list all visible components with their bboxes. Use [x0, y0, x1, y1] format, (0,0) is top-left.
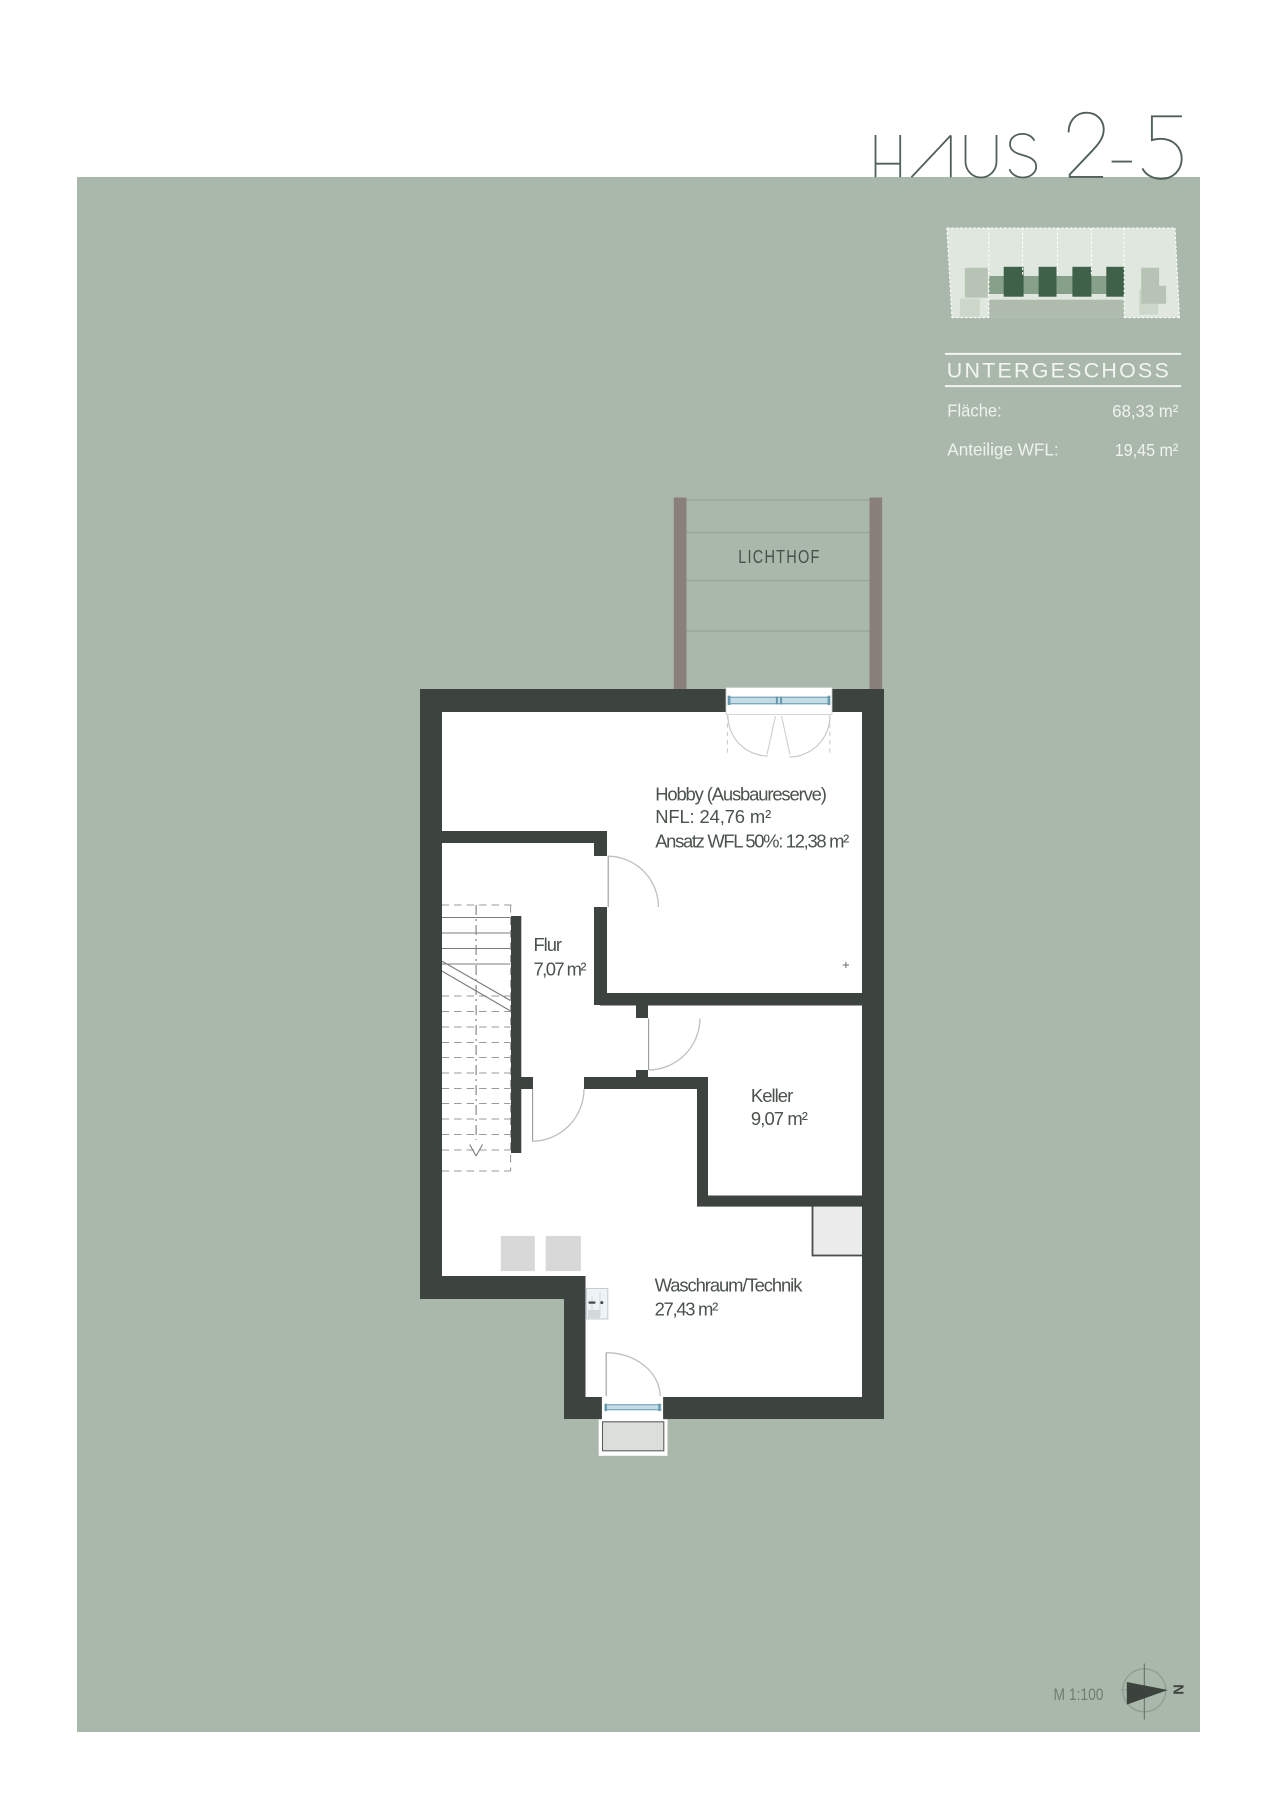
- svg-text:Waschraum/Technik: Waschraum/Technik: [655, 1275, 804, 1296]
- svg-text:UNTERGESCHOSS: UNTERGESCHOSS: [947, 358, 1174, 382]
- svg-text:Hobby (Ausbaureserve): Hobby (Ausbaureserve): [655, 784, 827, 805]
- svg-text:68,33 m²: 68,33 m²: [1112, 401, 1178, 421]
- svg-text:N: N: [1170, 1684, 1186, 1694]
- svg-text:Flur: Flur: [534, 934, 563, 955]
- svg-text:27,43 m²: 27,43 m²: [655, 1298, 719, 1319]
- svg-text:19,45 m²: 19,45 m²: [1115, 440, 1179, 460]
- svg-text:9,07 m²: 9,07 m²: [751, 1108, 808, 1129]
- svg-text:LICHTHOF: LICHTHOF: [738, 547, 820, 567]
- svg-text:7,07 m²: 7,07 m²: [534, 959, 587, 980]
- svg-text:Keller: Keller: [751, 1085, 793, 1106]
- svg-text:Fläche:: Fläche:: [947, 400, 1002, 420]
- svg-text:Ansatz WFL 50%: 12,38 m²: Ansatz WFL 50%: 12,38 m²: [655, 830, 849, 851]
- svg-text:NFL: 24,76 m²: NFL: 24,76 m²: [655, 806, 771, 827]
- svg-text:M 1:100: M 1:100: [1054, 1685, 1104, 1704]
- svg-text:Anteilige WFL:: Anteilige WFL:: [947, 439, 1058, 459]
